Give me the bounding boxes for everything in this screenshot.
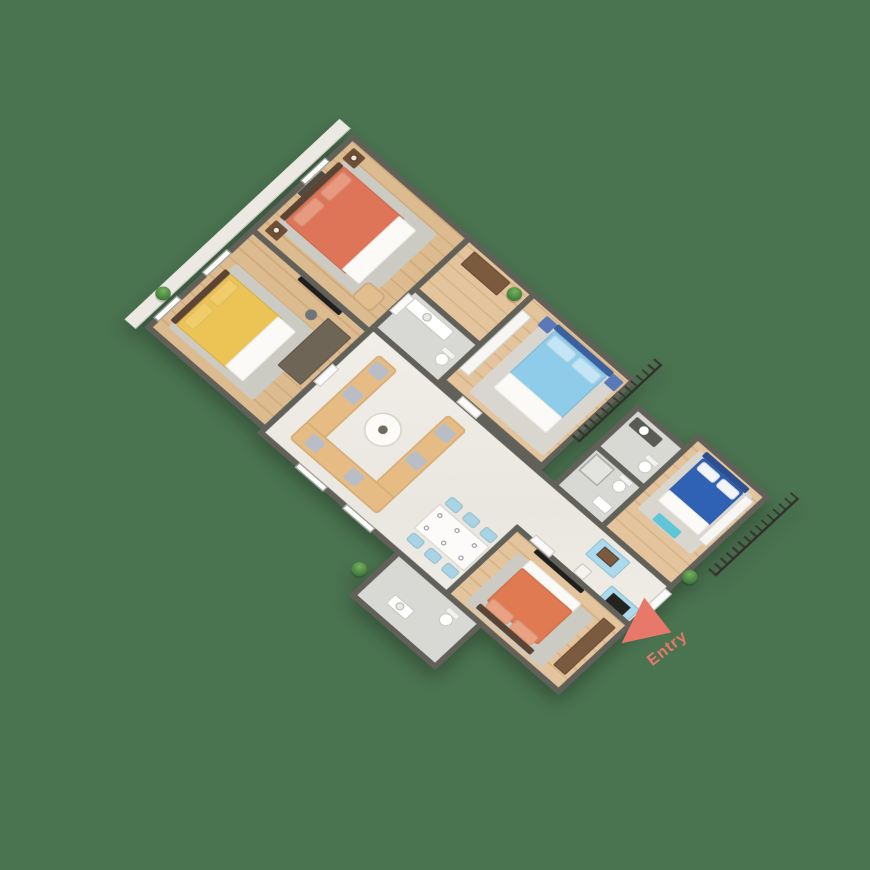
- brown-dresser: [460, 251, 510, 296]
- kitchen-sink: [596, 546, 620, 567]
- stool: [303, 307, 320, 322]
- sink: [591, 494, 614, 515]
- potted-plant: [348, 559, 370, 579]
- kitchen-island: [585, 538, 631, 579]
- shower: [578, 453, 615, 487]
- floor-plan: [86, 133, 784, 757]
- screenshot-canvas: { "scene": { "description": "3D isometri…: [0, 0, 870, 870]
